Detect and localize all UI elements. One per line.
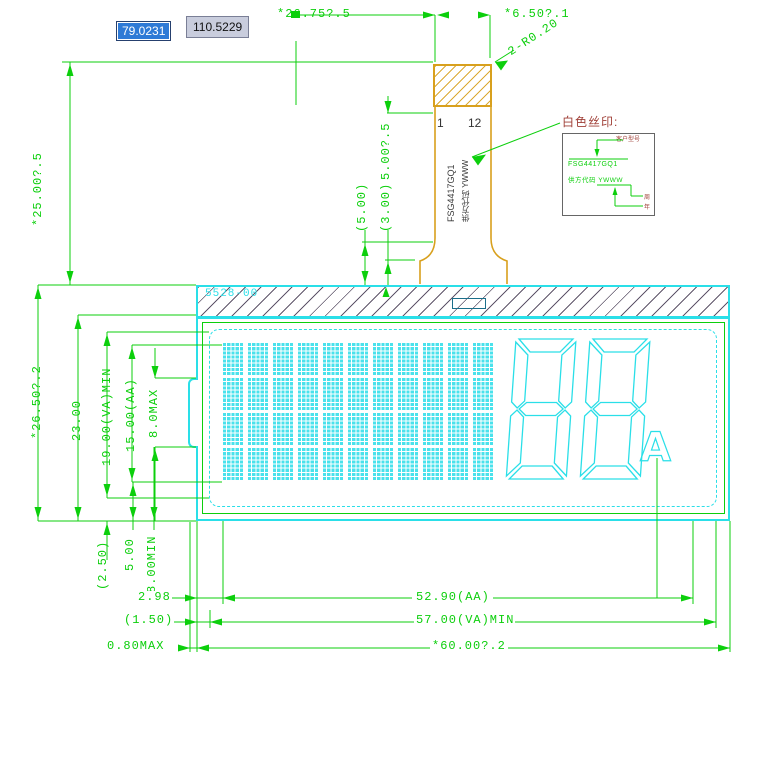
- dim-tab-height: 8.0MAX: [148, 386, 162, 438]
- dim-edge-to-va: (1.50): [124, 614, 173, 627]
- matrix-block: [247, 377, 268, 410]
- matrix-block: [447, 447, 468, 480]
- dim-neck-length: (3.00): [380, 182, 394, 232]
- matrix-block: [247, 412, 268, 445]
- matrix-block: [372, 342, 393, 375]
- matrix-block: [472, 447, 493, 480]
- matrix-block: [272, 377, 293, 410]
- matrix-block: [397, 447, 418, 480]
- matrix-block: [372, 447, 393, 480]
- dim-radius-callout: 2-R0.20: [506, 17, 561, 59]
- dim-va-height: 19.00(VA)MIN: [101, 366, 115, 466]
- left-tab-outline: [188, 378, 198, 448]
- matrix-block: [347, 377, 368, 410]
- fpc-stiffener-hatch: [433, 64, 492, 107]
- matrix-block: [272, 412, 293, 445]
- dim-tail-length: *25.00?.5: [32, 150, 46, 226]
- dim-top-width: *26.75?.5: [277, 8, 351, 21]
- hatch-bar-window: [452, 298, 486, 309]
- coord-input-y-value[interactable]: 110.5229: [193, 20, 242, 34]
- dim-bottom-min: 8.00MIN: [146, 533, 160, 593]
- matrix-block: [372, 412, 393, 445]
- matrix-block: [322, 377, 343, 410]
- matrix-block: [397, 412, 418, 445]
- dim-module-width: *60.00?.2: [432, 640, 506, 653]
- matrix-block: [347, 447, 368, 480]
- matrix-block: [397, 377, 418, 410]
- matrix-block: [347, 342, 368, 375]
- matrix-block: [347, 412, 368, 445]
- pin-label-last: 12: [468, 116, 481, 130]
- dim-bottom-step: (2.50): [97, 540, 111, 590]
- cad-drawing-canvas: 79.0231 110.5229 5528-00 1 12 FSG4417GQ1…: [0, 0, 762, 762]
- matrix-block: [472, 342, 493, 375]
- callout-label-week: 周: [644, 192, 650, 201]
- dim-edge-to-aa: 2.98: [138, 591, 171, 604]
- matrix-block: [397, 342, 418, 375]
- coord-input-x[interactable]: 79.0231: [116, 21, 171, 41]
- matrix-block: [422, 447, 443, 480]
- dim-flare-length: (5.00): [356, 182, 370, 232]
- dim-bottom-gap: 5.00: [124, 535, 138, 571]
- dim-aa-height: 15.00(AA): [125, 376, 139, 452]
- dim-glass-height: 23.00: [71, 397, 85, 441]
- matrix-block: [247, 342, 268, 375]
- matrix-block: [222, 377, 243, 410]
- dot-matrix-display: [222, 342, 493, 480]
- matrix-block: [472, 412, 493, 445]
- matrix-block: [422, 342, 443, 375]
- matrix-block: [447, 377, 468, 410]
- dim-edge-max: 0.80MAX: [107, 640, 164, 653]
- silk-print-callout-title: 白色丝印:: [562, 113, 618, 130]
- matrix-block: [297, 447, 318, 480]
- matrix-block: [422, 412, 443, 445]
- matrix-block: [422, 377, 443, 410]
- matrix-block: [322, 447, 343, 480]
- fpc-silk-text-line2: 供方代码 YWWW: [460, 136, 471, 222]
- matrix-block: [272, 447, 293, 480]
- matrix-block: [222, 412, 243, 445]
- callout-silk-line1: FSG4417GQ1: [568, 161, 618, 168]
- dim-module-height: *26.50?.2: [31, 363, 45, 439]
- matrix-block: [322, 412, 343, 445]
- dim-tail-width: *6.50?.1: [504, 8, 570, 21]
- matrix-block: [297, 377, 318, 410]
- dim-aa-width: 52.90(AA): [416, 591, 490, 604]
- pin-label-first: 1: [437, 116, 444, 130]
- dim-va-width: 57.00(VA)MIN: [416, 614, 514, 627]
- matrix-block: [322, 342, 343, 375]
- matrix-block: [222, 447, 243, 480]
- coord-input-x-value[interactable]: 79.0231: [118, 23, 169, 39]
- callout-silk-line2: 供方代码 YWWW: [568, 174, 623, 184]
- matrix-block: [447, 342, 468, 375]
- matrix-block: [222, 342, 243, 375]
- matrix-block: [297, 342, 318, 375]
- matrix-block: [472, 377, 493, 410]
- glass-label: 5528-00: [205, 288, 258, 300]
- fpc-silk-text-line1: FSG4417GQ1: [446, 130, 456, 222]
- callout-label-year: 年: [644, 202, 650, 211]
- coord-input-y[interactable]: 110.5229: [186, 16, 249, 38]
- dim-stiffener-length: 5.00?.5: [380, 120, 394, 180]
- callout-label-model: 客户型号: [616, 134, 640, 143]
- matrix-block: [372, 377, 393, 410]
- matrix-block: [447, 412, 468, 445]
- matrix-block: [247, 447, 268, 480]
- matrix-block: [297, 412, 318, 445]
- matrix-block: [272, 342, 293, 375]
